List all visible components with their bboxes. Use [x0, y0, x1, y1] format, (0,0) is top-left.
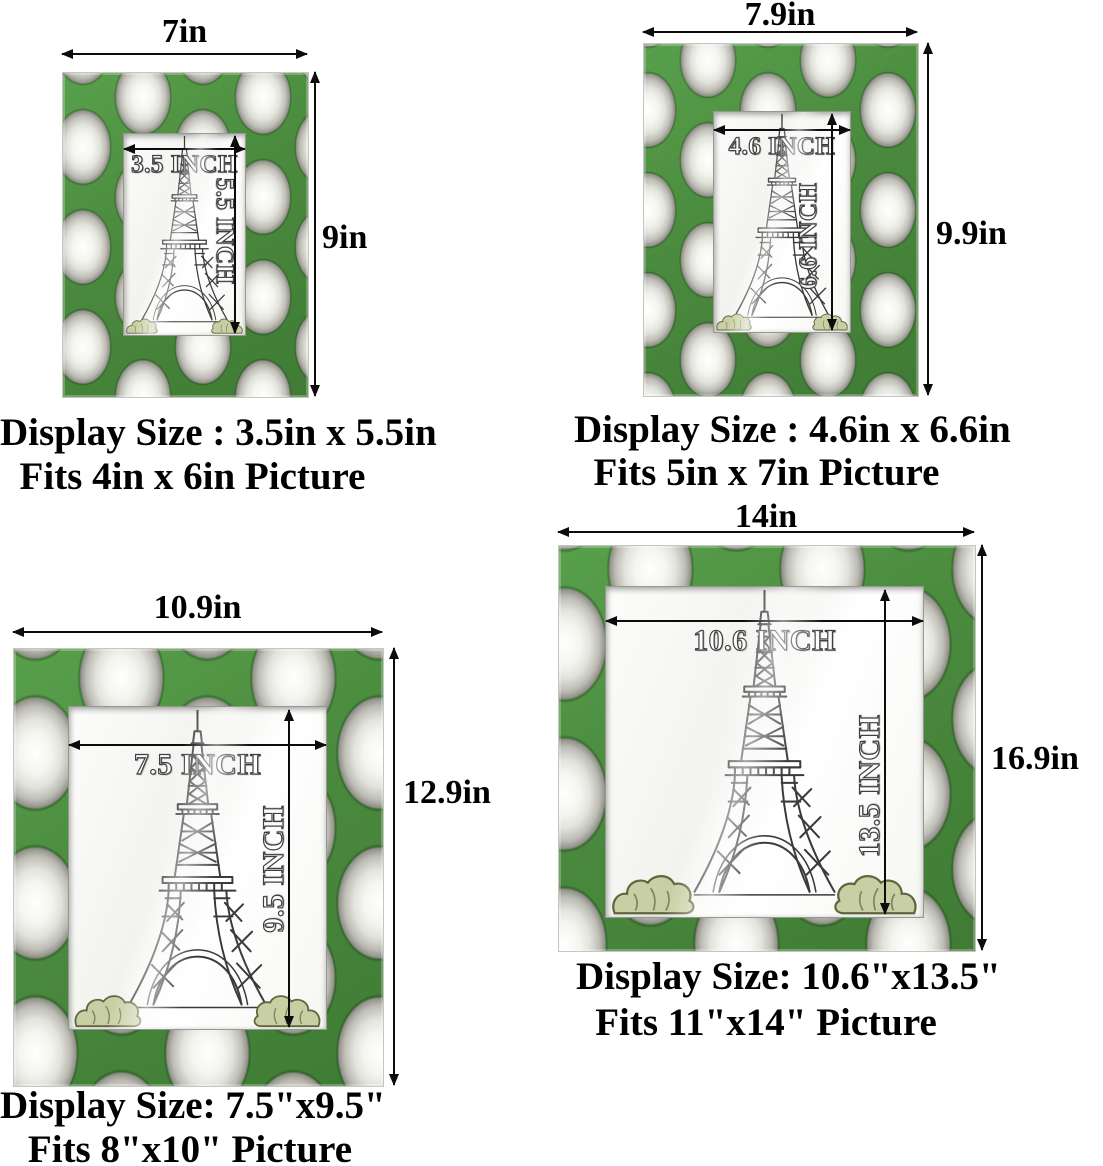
- outer-width-label: 14in: [558, 498, 974, 535]
- frame-panel-11x14: 14in 16.9in 10.6 INCH 13.5 INCH Display …: [0, 0, 1103, 1166]
- outer-height-arrow: [981, 545, 983, 950]
- fits-caption: Fits 11"x14" Picture: [576, 1003, 956, 1044]
- picture-frame: 10.6 INCH 13.5 INCH: [558, 545, 976, 952]
- outer-width-arrow: [558, 531, 974, 533]
- outer-height-label: 16.9in: [991, 740, 1079, 777]
- photo-opening: 10.6 INCH 13.5 INCH: [605, 586, 924, 918]
- display-size-caption: Display Size: 10.6"x13.5": [576, 957, 956, 998]
- product-dimension-sheet: 7in 9in 3.5 INCH 5.5 INCH Display Size :…: [0, 0, 1103, 1166]
- glass-reflection: [606, 587, 923, 917]
